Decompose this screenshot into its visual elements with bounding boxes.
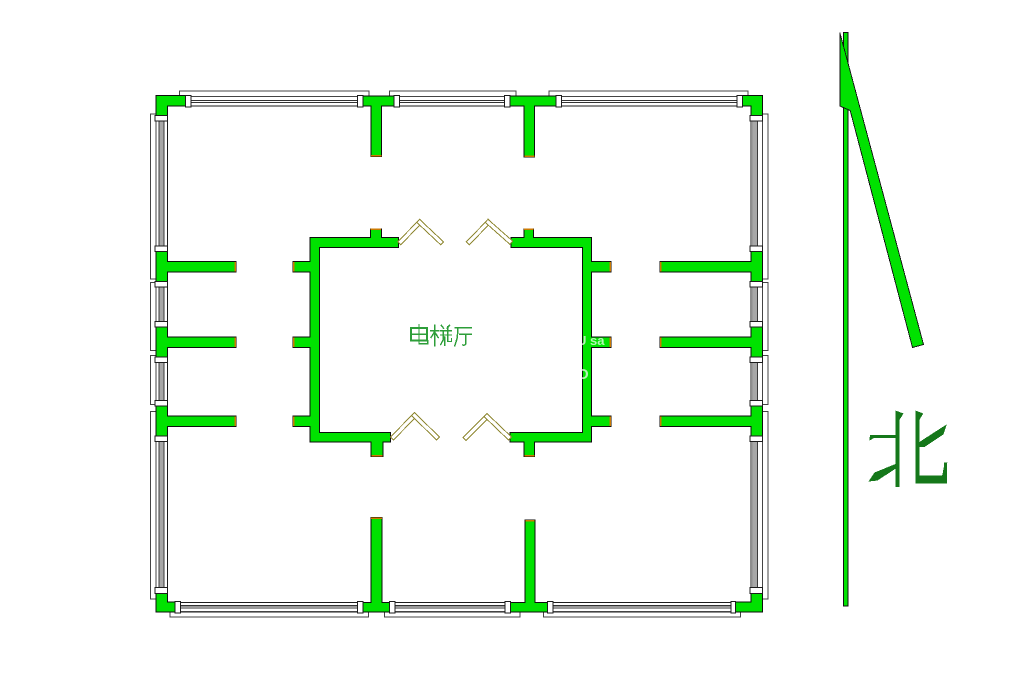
svg-text:U sa: U sa bbox=[577, 333, 605, 348]
svg-text:O: O bbox=[577, 366, 589, 383]
